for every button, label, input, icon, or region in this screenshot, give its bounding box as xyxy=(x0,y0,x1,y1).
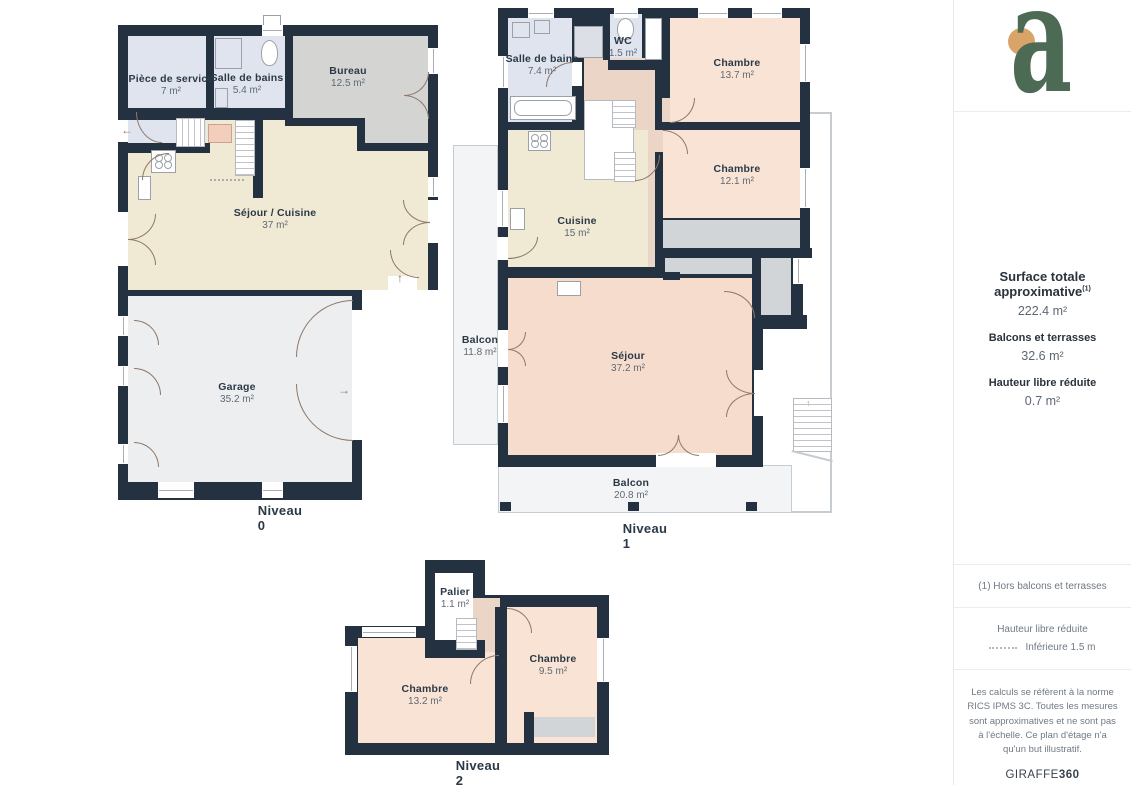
balcony-post xyxy=(628,502,639,511)
window xyxy=(428,48,438,74)
room-area: 11.8 m² xyxy=(462,347,498,358)
terrace-edge xyxy=(808,112,830,114)
door-opening xyxy=(118,212,128,266)
ledge xyxy=(663,220,800,248)
window xyxy=(118,444,128,464)
surface-total-label: Surface totale approximative(1) xyxy=(954,269,1131,299)
door-opening xyxy=(498,330,508,367)
room-label: Séjour / Cuisine 37 m² xyxy=(234,207,317,231)
room-name: Salle de bains xyxy=(506,53,579,65)
logo-letter-icon: a xyxy=(1010,0,1072,114)
wall xyxy=(498,122,590,130)
surface-footnote-marker: (1) xyxy=(1082,285,1091,292)
agency-logo: a xyxy=(1008,10,1078,102)
burner xyxy=(540,140,548,148)
floorplan-page: ← ↑ → Pièce de service 7 m² Salle de bai… xyxy=(0,0,1131,785)
room-name: Chambre xyxy=(714,163,761,175)
fireplace xyxy=(557,281,581,296)
door-opening xyxy=(662,98,670,122)
room-area: 5.4 m² xyxy=(211,85,284,96)
room-name: Séjour / Cuisine xyxy=(234,207,317,219)
window xyxy=(262,25,283,36)
room-name: Balcon xyxy=(613,477,649,489)
window xyxy=(800,168,810,208)
door-opening xyxy=(655,130,663,152)
stairs xyxy=(456,618,477,650)
bureau-closet-floor xyxy=(365,118,428,143)
wall xyxy=(495,680,507,743)
entry-arrow-icon: ↑ xyxy=(397,272,403,284)
room-area: 9.5 m² xyxy=(530,666,577,677)
brand-normal: GIRAFFE xyxy=(1005,769,1058,781)
room-area: 35.2 m² xyxy=(218,394,255,405)
room-label: Chambre 12.1 m² xyxy=(714,163,761,187)
room-area: 15 m² xyxy=(557,228,596,239)
wall xyxy=(495,607,507,655)
giraffe360-brand: GIRAFFE360 xyxy=(954,769,1131,781)
disclaimer-section: Les calculs se réfèrent à la norme RICS … xyxy=(954,670,1131,785)
room-name: Palier xyxy=(440,586,470,598)
room-area: 7.4 m² xyxy=(506,66,579,77)
room-name: Garage xyxy=(218,381,255,393)
terrace-edge xyxy=(830,112,832,513)
wall xyxy=(357,143,438,151)
legend-row: Inférieure 1.5 m xyxy=(989,642,1095,653)
balconies-value: 32.6 m² xyxy=(1021,349,1063,363)
footnote-text: (1) Hors balcons et terrasses xyxy=(978,581,1106,592)
stairs xyxy=(614,152,636,182)
window xyxy=(698,8,728,18)
surface-total-text: Surface totale approximative xyxy=(994,269,1085,299)
room-label: Bureau 12.5 m² xyxy=(329,65,366,89)
wall xyxy=(498,267,665,278)
window xyxy=(118,316,128,336)
legend-section: Hauteur libre réduite Inférieure 1.5 m xyxy=(954,608,1131,670)
disclaimer-text: Les calculs se réfèrent à la norme RICS … xyxy=(954,670,1131,757)
window xyxy=(752,8,782,18)
room-name: Bureau xyxy=(329,65,366,77)
room-area: 1.5 m² xyxy=(609,48,637,59)
room-name: Cuisine xyxy=(557,215,596,227)
room-label: Cuisine 15 m² xyxy=(557,215,596,239)
window xyxy=(118,366,128,386)
door-opening xyxy=(352,310,362,440)
legend-item-text: Inférieure 1.5 m xyxy=(1025,642,1095,653)
closet-gray xyxy=(534,717,595,737)
room-label: Chambre 13.7 m² xyxy=(714,57,761,81)
level-label-niveau-2: Niveau 2 xyxy=(456,758,500,785)
reduced-height-line xyxy=(210,179,244,181)
stove xyxy=(528,131,551,151)
wall xyxy=(473,560,485,598)
wall xyxy=(285,118,365,126)
window xyxy=(528,8,554,18)
wall xyxy=(206,108,293,120)
room-name: Chambre xyxy=(402,683,449,695)
window xyxy=(497,190,508,227)
exit-arrow-icon: ← xyxy=(121,124,133,136)
door-opening xyxy=(656,453,716,467)
room-area: 12.5 m² xyxy=(329,78,366,89)
terrace-edge xyxy=(792,511,832,513)
legend-title: Hauteur libre réduite xyxy=(997,624,1088,635)
room-label: Salle de bains 5.4 m² xyxy=(211,72,284,96)
window xyxy=(498,385,508,423)
stairs xyxy=(612,100,636,128)
room-label: Palier 1.1 m² xyxy=(440,586,470,610)
sink xyxy=(534,20,550,34)
info-sidebar: a Surface totale approximative(1) 222.4 … xyxy=(953,0,1131,785)
window xyxy=(793,258,803,284)
balconies-label: Balcons et terrasses xyxy=(989,332,1097,344)
stairs-up-arrow-icon: ↑ xyxy=(806,399,811,408)
level-label-niveau-1: Niveau 1 xyxy=(623,521,667,551)
wall xyxy=(655,122,810,130)
window xyxy=(800,44,810,82)
room-label: Garage 35.2 m² xyxy=(218,381,255,405)
exterior-stairs xyxy=(793,398,832,452)
window xyxy=(262,482,283,498)
window xyxy=(362,627,416,637)
room-area: 7 m² xyxy=(129,86,214,97)
room-label: WC 1.5 m² xyxy=(609,35,637,59)
room-name: Chambre xyxy=(530,653,577,665)
burner xyxy=(531,140,539,148)
dashed-line-icon xyxy=(989,647,1017,649)
room-name: Pièce de service xyxy=(129,73,214,85)
wall xyxy=(285,25,293,120)
wall xyxy=(524,712,534,743)
window xyxy=(597,638,609,682)
room-area: 13.7 m² xyxy=(714,70,761,81)
stairs xyxy=(176,118,205,147)
window xyxy=(428,177,438,197)
room-area: 13.2 m² xyxy=(402,696,449,707)
surface-total-value: 222.4 m² xyxy=(1018,304,1067,318)
room-label: Balcon 20.8 m² xyxy=(613,477,649,501)
balcony-left xyxy=(453,145,498,445)
sink xyxy=(512,22,530,38)
ledge xyxy=(665,258,783,274)
shower xyxy=(215,38,242,69)
garage-arrow-icon: → xyxy=(338,384,350,396)
window xyxy=(158,482,194,498)
toilet xyxy=(261,40,278,66)
room-name: WC xyxy=(609,35,637,47)
room-label: Séjour 37.2 m² xyxy=(611,350,645,374)
floor-strip xyxy=(285,126,357,151)
wall xyxy=(655,248,812,258)
stairs xyxy=(235,120,255,176)
bathtub xyxy=(510,96,576,120)
room-label: Balcon 11.8 m² xyxy=(462,334,498,358)
window xyxy=(345,646,357,692)
balcony-post xyxy=(746,502,757,511)
room-area: 1.1 m² xyxy=(440,599,470,610)
wall xyxy=(608,60,662,70)
bathtub-inner xyxy=(514,100,572,116)
closet xyxy=(645,18,662,60)
room-label: Salle de bains 7.4 m² xyxy=(506,53,579,77)
room-name: Balcon xyxy=(462,334,498,346)
room-name: Chambre xyxy=(714,57,761,69)
room-area: 37 m² xyxy=(234,220,317,231)
logo-section: a xyxy=(954,0,1131,112)
room-area: 37.2 m² xyxy=(611,363,645,374)
room-label: Chambre 13.2 m² xyxy=(402,683,449,707)
room-label: Chambre 9.5 m² xyxy=(530,653,577,677)
wall xyxy=(663,272,680,280)
room-label: Pièce de service 7 m² xyxy=(129,73,214,97)
surface-summary-section: Surface totale approximative(1) 222.4 m²… xyxy=(954,112,1131,565)
counter xyxy=(208,124,232,143)
footnote-section: (1) Hors balcons et terrasses xyxy=(954,565,1131,608)
window xyxy=(614,8,638,18)
sink xyxy=(510,208,525,230)
balcony-post xyxy=(500,502,511,511)
reduced-height-label: Hauteur libre réduite xyxy=(989,377,1097,389)
door-opening xyxy=(497,237,508,260)
reduced-height-value: 0.7 m² xyxy=(1025,394,1060,408)
room-name: Salle de bains xyxy=(211,72,284,84)
room-area: 12.1 m² xyxy=(714,176,761,187)
door-opening xyxy=(754,370,763,416)
room-name: Séjour xyxy=(611,350,645,362)
level-label-niveau-0: Niveau 0 xyxy=(258,503,302,533)
wall xyxy=(752,315,807,329)
room-area: 20.8 m² xyxy=(613,490,649,501)
brand-bold: 360 xyxy=(1059,769,1080,781)
